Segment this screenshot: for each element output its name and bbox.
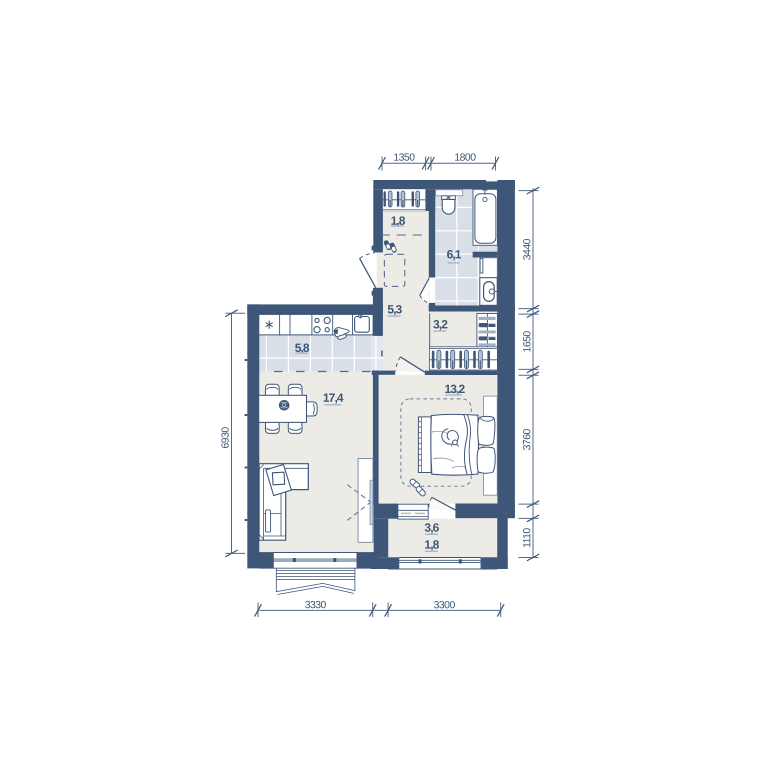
svg-text:6,1: 6,1 (447, 247, 462, 261)
svg-text:3330: 3330 (305, 600, 327, 611)
svg-text:1350: 1350 (393, 153, 415, 164)
svg-text:3760: 3760 (522, 428, 533, 450)
svg-text:17,4: 17,4 (323, 391, 344, 405)
svg-text:6930: 6930 (221, 427, 232, 449)
svg-text:3300: 3300 (434, 600, 456, 611)
svg-text:1110: 1110 (522, 528, 533, 548)
svg-text:1800: 1800 (454, 153, 476, 164)
svg-text:3,6: 3,6 (424, 521, 439, 535)
svg-text:13,2: 13,2 (445, 382, 466, 396)
svg-text:1,8: 1,8 (424, 538, 439, 552)
svg-text:3,2: 3,2 (433, 317, 448, 331)
svg-text:5,3: 5,3 (387, 302, 402, 316)
svg-text:1650: 1650 (522, 331, 533, 353)
svg-text:3440: 3440 (522, 238, 533, 260)
